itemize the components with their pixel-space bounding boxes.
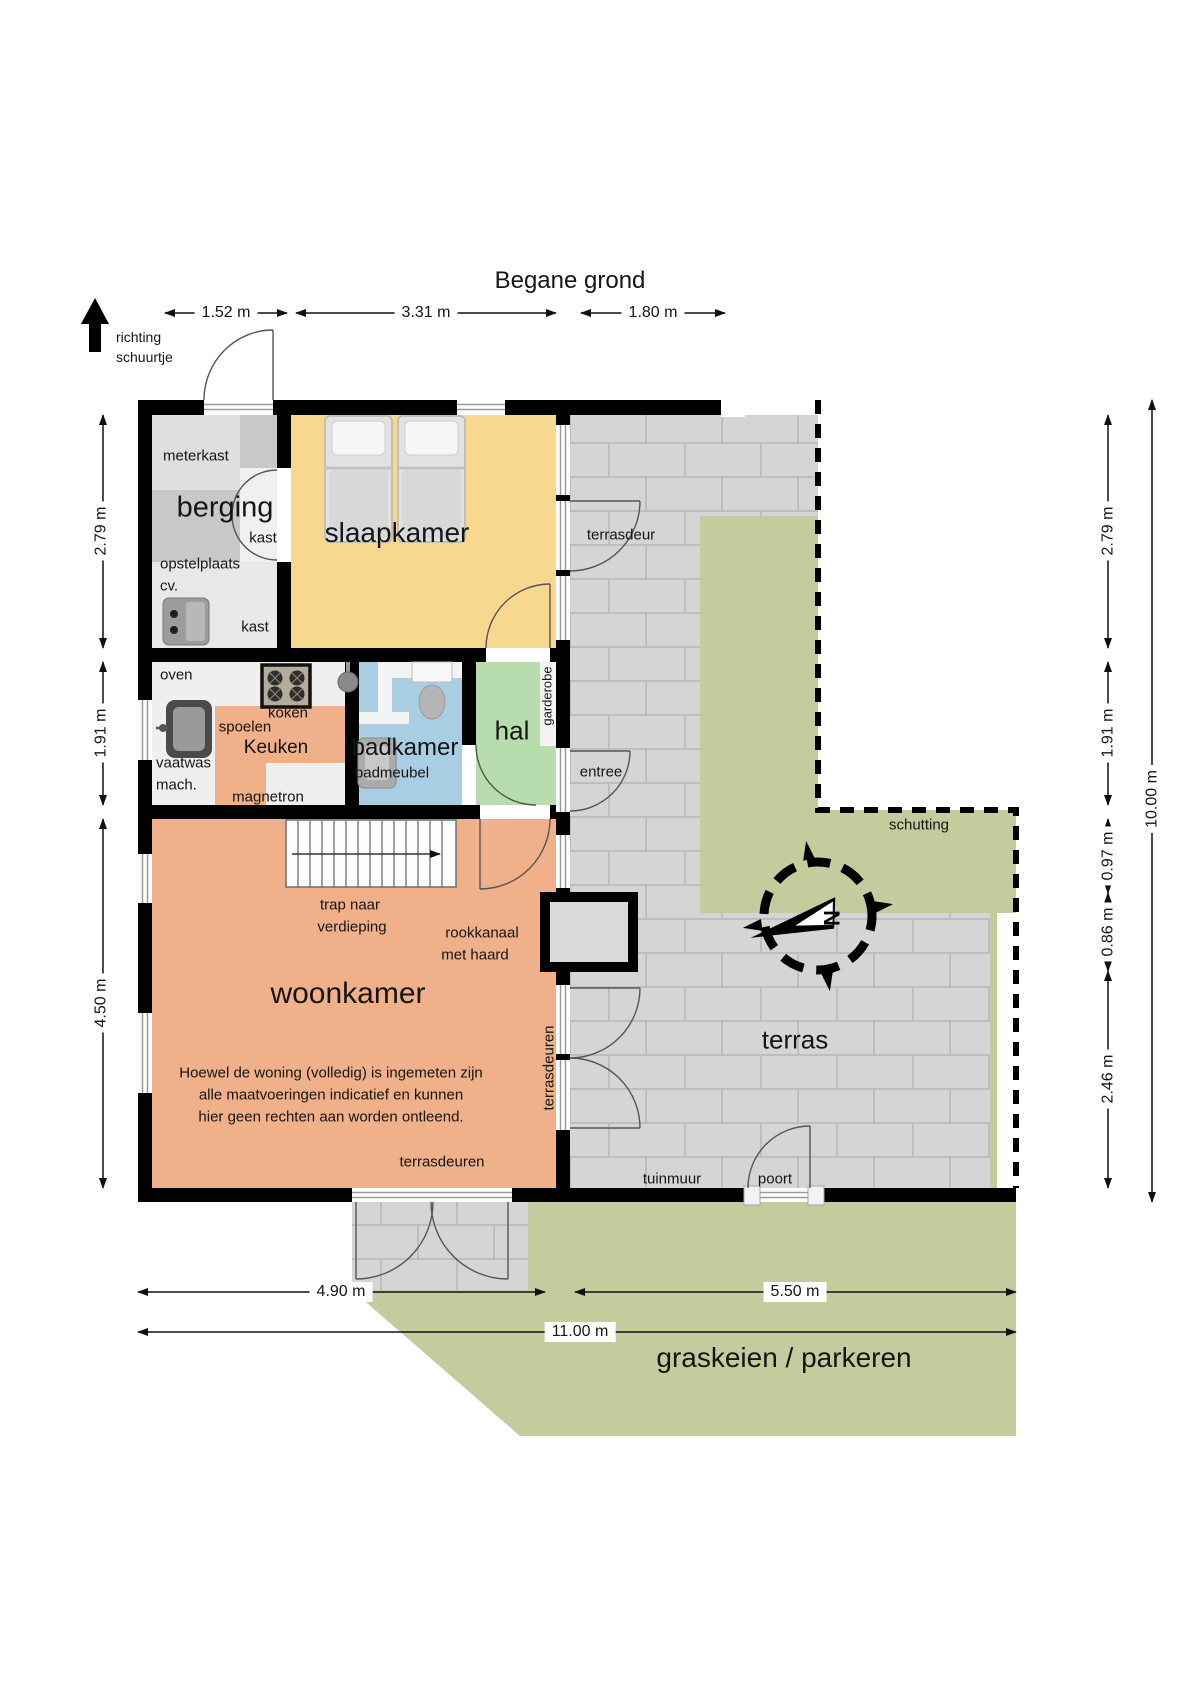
direction-arrow-icon (81, 298, 109, 352)
dim-right-total: 10.00 m (1143, 765, 1162, 833)
label-opstelplaats-1: opstelplaats (160, 556, 240, 573)
terrace-pad (352, 1202, 528, 1290)
label-magnetron: magnetron (232, 789, 304, 806)
dim-right-1: 2.79 m (1099, 502, 1118, 561)
label-opstelplaats-2: cv. (160, 578, 178, 595)
label-poort: poort (758, 1171, 792, 1188)
label-koken: koken (268, 705, 308, 722)
dim-left-3: 4.50 m (92, 974, 111, 1033)
cv-ketel (163, 598, 209, 645)
label-room-hal: hal (495, 716, 530, 747)
label-trap-1: trap naar (320, 897, 380, 914)
dim-right-5: 2.46 m (1099, 1050, 1118, 1109)
label-oven: oven (160, 667, 193, 684)
label-room-berging: berging (177, 492, 274, 525)
dim-bottom-1: 4.90 m (310, 1282, 373, 1302)
dim-right-4: 0.86 m (1099, 903, 1118, 962)
label-room-keuken: Keuken (244, 737, 308, 759)
label-rookkanaal-2: met haard (441, 947, 509, 964)
disclaimer-line3: hier geen rechten aan worden ontleend. (198, 1109, 463, 1126)
dim-right-2: 1.91 m (1099, 704, 1118, 763)
label-meterkast: meterkast (163, 448, 229, 465)
label-room-badkamer: badkamer (352, 734, 459, 762)
disclaimer-line1: Hoewel de woning (volledig) is ingemeten… (179, 1065, 483, 1082)
label-rookkanaal-1: rookkanaal (445, 925, 518, 942)
stove (262, 665, 310, 707)
label-vaatwas-2: mach. (156, 777, 197, 794)
dim-top-1: 1.52 m (195, 303, 258, 323)
direction-note-line1: richting (116, 327, 161, 347)
label-kast-lower: kast (241, 619, 269, 636)
label-terrasdeur: terrasdeur (587, 527, 655, 544)
fireplace (540, 892, 638, 972)
label-kast-upper: kast (249, 530, 277, 547)
dim-left-2: 1.91 m (92, 704, 111, 763)
staircase (286, 820, 456, 887)
label-terrasdeuren-wall: terrasdeuren (541, 1025, 558, 1110)
label-tuinmuur: tuinmuur (643, 1171, 701, 1188)
compass-north-text: N (819, 910, 844, 926)
label-garderobe: garderobe (540, 666, 555, 725)
label-room-terras: terras (762, 1025, 828, 1056)
dim-top-2: 3.31 m (395, 303, 458, 323)
label-trap-2: verdieping (317, 919, 386, 936)
label-terrasdeuren-bottom: terrasdeuren (399, 1154, 484, 1171)
direction-note-line2: schuurtje (116, 347, 173, 367)
floorplan-graphics: N (0, 0, 1200, 1697)
dim-top-3: 1.80 m (622, 303, 685, 323)
page-title: Begane grond (495, 267, 646, 295)
label-entree: entree (580, 764, 623, 781)
floorplan-canvas: N Begane grond richting schuurtje 1.52 m… (0, 0, 1200, 1697)
wall-notch (721, 398, 745, 417)
dim-bottom-2: 5.50 m (764, 1282, 827, 1302)
label-graskeien: graskeien / parkeren (656, 1342, 911, 1374)
dim-left-1: 2.79 m (92, 502, 111, 561)
label-vaatwas-1: vaatwas (156, 755, 211, 772)
disclaimer-line2: alle maatvoeringen indicatief en kunnen (199, 1087, 463, 1104)
label-room-woonkamer: woonkamer (270, 977, 425, 1011)
dim-bottom-total: 11.00 m (545, 1322, 616, 1342)
label-badmeubel: badmeubel (355, 765, 429, 782)
dim-right-3: 0.97 m (1099, 827, 1118, 886)
label-room-slaapkamer: slaapkamer (325, 517, 470, 549)
label-spoelen: spoelen (219, 719, 272, 736)
label-schutting: schutting (889, 817, 949, 834)
